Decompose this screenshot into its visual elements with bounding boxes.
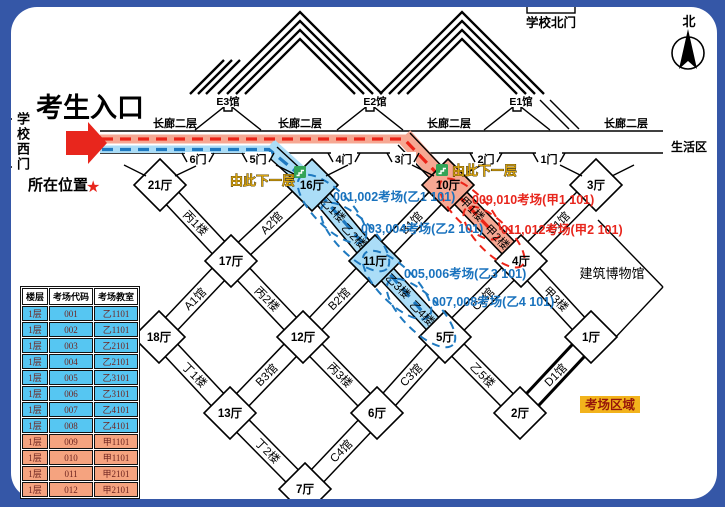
legend-cell: 乙4101: [94, 402, 138, 417]
legend-cell: 1层: [22, 370, 48, 385]
legend-cell: 1层: [22, 306, 48, 321]
legend-row: 1层012甲2101: [22, 482, 138, 497]
legend-cell: 008: [49, 418, 93, 433]
legend-cell: 1层: [22, 322, 48, 337]
legend-cell: 1层: [22, 418, 48, 433]
legend-cell: 乙4101: [94, 418, 138, 433]
hall-label-11: 11厅: [363, 255, 387, 268]
hall-label-5: 5厅: [436, 331, 454, 344]
go-down-note-right: 由此下一层: [452, 163, 517, 178]
hall-label-16: 16厅: [300, 179, 325, 192]
west-gate-label: 学校西门: [13, 112, 32, 172]
legend-row: 1层003乙2101: [22, 338, 138, 353]
hall-label-3: 3厅: [587, 179, 605, 192]
legend-cell: 009: [49, 434, 93, 449]
exam-area-badge: 考场区域: [585, 397, 636, 412]
legend-cell: 005: [49, 370, 93, 385]
legend-row: 1层004乙2101: [22, 354, 138, 369]
legend-cell: 1层: [22, 402, 48, 417]
entrance-title: 考生入口: [36, 93, 144, 123]
gate-label-4: 4门: [335, 152, 352, 166]
hall-label-21: 21厅: [148, 179, 173, 192]
legend-row: 1层005乙3101: [22, 370, 138, 385]
stairs-down-icon-left: [294, 166, 306, 178]
assignment-red-2: 011,012考场(甲2 101): [501, 222, 623, 237]
legend-cell: 甲2101: [94, 482, 138, 497]
current-location-star-icon: ★: [86, 179, 100, 196]
stairs-down-icon-right: [436, 164, 448, 176]
legend-row: 1层009甲1101: [22, 434, 138, 449]
legend-cell: 004: [49, 354, 93, 369]
living-area-label: 生活区: [671, 139, 707, 154]
legend-cell: 1层: [22, 482, 48, 497]
legend-row: 1层011甲2101: [22, 466, 138, 481]
gate-label-6: 6门: [189, 152, 206, 166]
hall-label-6: 6厅: [368, 407, 386, 420]
legend-cell: 乙2101: [94, 338, 138, 353]
legend-cell: 乙2101: [94, 354, 138, 369]
legend-cell: 乙3101: [94, 386, 138, 401]
north-label: 北: [682, 14, 695, 29]
legend-row: 1层002乙1101: [22, 322, 138, 337]
assignment-blue-2: 003,004考场(乙2 101): [361, 221, 483, 236]
north-gate-label: 学校北门: [526, 15, 576, 30]
gate-label-1: 1门: [540, 152, 557, 166]
legend-cell: 甲2101: [94, 466, 138, 481]
legend-cell: 1层: [22, 434, 48, 449]
legend-cell: 011: [49, 466, 93, 481]
e1-hall-label: E1馆: [509, 95, 533, 108]
legend-table: 楼层 考场代码 考场教室 1层001乙1101 1层002乙1101 1层003…: [20, 286, 140, 499]
current-location-label: 所在位置: [28, 176, 88, 194]
legend-cell: 乙1101: [94, 322, 138, 337]
legend-cell: 甲1101: [94, 450, 138, 465]
legend-table-container: 楼层 考场代码 考场教室 1层001乙1101 1层002乙1101 1层003…: [20, 286, 140, 499]
legend-cell: 010: [49, 450, 93, 465]
hall-label-13: 13厅: [218, 407, 243, 420]
corridor-label-1: 长廊二层: [153, 116, 197, 130]
hall-label-2: 2厅: [511, 407, 529, 420]
legend-cell: 乙3101: [94, 370, 138, 385]
assignment-red-1: 009,010考场(甲1 101): [472, 192, 594, 207]
legend-cell: 006: [49, 386, 93, 401]
gate-label-3: 3门: [394, 152, 411, 166]
legend-header-floor: 楼层: [22, 288, 48, 305]
legend-row: 1层010甲1101: [22, 450, 138, 465]
west-gate-bracket: [4, 119, 12, 167]
e2-hall-label: E2馆: [363, 95, 387, 108]
gate-label-5: 5门: [249, 152, 266, 166]
legend-cell: 1层: [22, 386, 48, 401]
e3-hall-label: E3馆: [216, 95, 240, 108]
legend-cell: 1层: [22, 338, 48, 353]
legend-header-room: 考场教室: [94, 288, 138, 305]
hall-label-7: 7厅: [296, 483, 314, 496]
legend-row: 1层001乙1101: [22, 306, 138, 321]
legend-cell: 001: [49, 306, 93, 321]
hall-label-17: 17厅: [219, 255, 244, 268]
hall-label-1: 1厅: [582, 331, 600, 344]
legend-cell: 003: [49, 338, 93, 353]
go-down-note-left: 由此下一层: [230, 173, 295, 188]
museum-label: 建筑博物馆: [579, 266, 644, 281]
legend-cell: 012: [49, 482, 93, 497]
legend-row: 1层007乙4101: [22, 402, 138, 417]
legend-cell: 002: [49, 322, 93, 337]
assignment-blue-1: 001,002考场(乙1 101): [333, 189, 455, 204]
exam-venue-map: E3馆 E2馆 E1馆: [0, 0, 725, 507]
assignment-blue-4: 007,008考场(乙4 101): [432, 294, 554, 309]
corridor-label-3: 长廊二层: [427, 116, 471, 130]
legend-header-row: 楼层 考场代码 考场教室: [22, 288, 138, 305]
legend-cell: 1层: [22, 450, 48, 465]
legend-row: 1层008乙4101: [22, 418, 138, 433]
hall-label-12: 12厅: [291, 331, 316, 344]
corridor-label-2: 长廊二层: [278, 116, 322, 130]
legend-cell: 1层: [22, 354, 48, 369]
corridor-label-4: 长廊二层: [604, 116, 648, 130]
legend-cell: 007: [49, 402, 93, 417]
legend-header-code: 考场代码: [49, 288, 93, 305]
legend-row: 1层006乙3101: [22, 386, 138, 401]
legend-cell: 1层: [22, 466, 48, 481]
assignment-blue-3: 005,006考场(乙3 101): [404, 266, 526, 281]
legend-cell: 乙1101: [94, 306, 138, 321]
legend-cell: 甲1101: [94, 434, 138, 449]
hall-label-18: 18厅: [147, 331, 172, 344]
